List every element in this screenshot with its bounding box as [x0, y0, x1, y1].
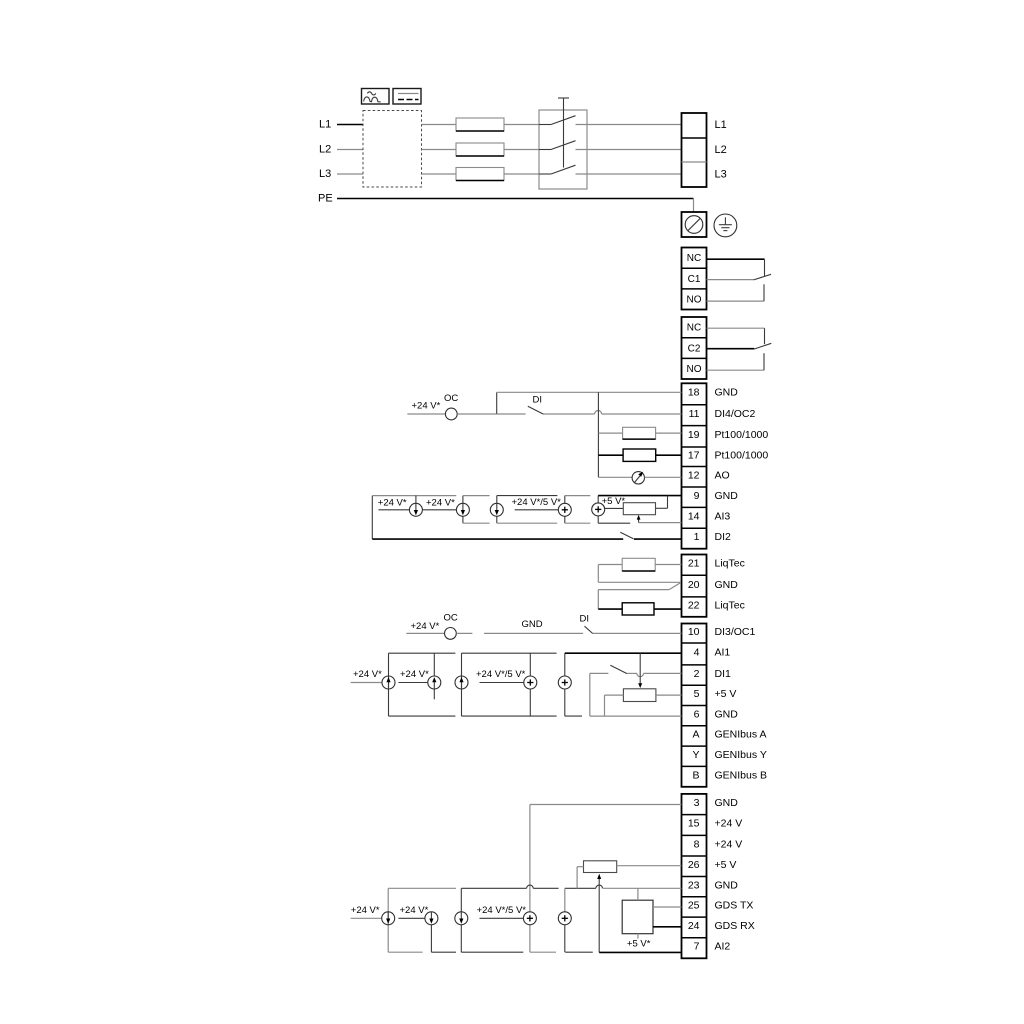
svg-text:GND: GND	[522, 619, 543, 630]
svg-text:1: 1	[694, 531, 700, 543]
svg-text:DI: DI	[533, 395, 543, 406]
svg-text:9: 9	[694, 490, 700, 502]
svg-text:Y: Y	[692, 749, 699, 761]
svg-text:+24 V*: +24 V*	[351, 905, 380, 916]
svg-text:GND: GND	[715, 490, 739, 502]
svg-text:AI3: AI3	[715, 511, 731, 523]
svg-text:NO: NO	[687, 295, 702, 306]
svg-text:+24 V*: +24 V*	[400, 669, 429, 680]
svg-text:14: 14	[688, 511, 700, 523]
svg-text:L1: L1	[319, 119, 331, 131]
svg-text:+5 V: +5 V	[715, 688, 737, 700]
svg-text:19: 19	[688, 429, 700, 441]
svg-text:6: 6	[694, 708, 700, 720]
svg-text:AI2: AI2	[715, 941, 731, 953]
svg-text:A: A	[692, 729, 699, 741]
svg-text:Pt100/1000: Pt100/1000	[715, 449, 769, 461]
svg-text:DI3/OC1: DI3/OC1	[715, 626, 756, 638]
svg-text:+24 V*: +24 V*	[400, 905, 429, 916]
svg-text:+24 V*/5 V*: +24 V*/5 V*	[512, 497, 562, 508]
svg-text:+5 V: +5 V	[715, 859, 737, 871]
svg-text:GENIbus A: GENIbus A	[715, 729, 767, 741]
svg-text:+24 V: +24 V	[715, 818, 743, 830]
svg-text:NO: NO	[687, 364, 702, 375]
svg-text:+24 V*: +24 V*	[426, 497, 455, 508]
svg-text:+24 V*/5 V*: +24 V*/5 V*	[476, 669, 526, 680]
svg-text:DI4/OC2: DI4/OC2	[715, 408, 756, 420]
svg-text:4: 4	[694, 647, 700, 659]
svg-text:C2: C2	[688, 343, 701, 354]
svg-text:+24 V*: +24 V*	[411, 621, 440, 632]
svg-text:11: 11	[689, 408, 700, 420]
svg-text:Pt100/1000: Pt100/1000	[715, 429, 769, 441]
svg-text:AI1: AI1	[715, 647, 731, 659]
svg-text:10: 10	[688, 626, 700, 638]
svg-text:GENIbus B: GENIbus B	[715, 769, 768, 781]
svg-text:24: 24	[688, 920, 700, 932]
svg-text:DI1: DI1	[715, 668, 732, 680]
svg-text:NC: NC	[687, 323, 701, 334]
svg-text:GENIbus Y: GENIbus Y	[715, 749, 767, 761]
svg-text:GND: GND	[715, 879, 739, 891]
svg-text:PE: PE	[318, 193, 333, 205]
svg-text:OC: OC	[444, 612, 458, 623]
svg-text:GDS TX: GDS TX	[715, 900, 754, 912]
svg-text:26: 26	[688, 859, 700, 871]
svg-text:DI2: DI2	[715, 531, 732, 543]
svg-text:LiqTec: LiqTec	[715, 600, 745, 612]
svg-text:18: 18	[688, 387, 700, 399]
svg-text:L2: L2	[715, 144, 727, 156]
svg-text:+24 V*: +24 V*	[378, 497, 407, 508]
svg-text:B: B	[692, 769, 699, 781]
svg-text:23: 23	[688, 879, 700, 891]
svg-text:25: 25	[688, 900, 700, 912]
svg-text:GND: GND	[715, 387, 739, 399]
svg-text:L3: L3	[319, 168, 331, 180]
svg-text:20: 20	[688, 579, 700, 591]
svg-text:21: 21	[688, 558, 700, 570]
svg-text:LiqTec: LiqTec	[715, 558, 745, 570]
svg-text:DI: DI	[580, 614, 590, 625]
svg-text:GND: GND	[715, 797, 739, 809]
svg-text:5: 5	[694, 688, 700, 700]
svg-text:C1: C1	[688, 274, 701, 285]
svg-text:22: 22	[688, 600, 700, 612]
svg-text:12: 12	[688, 469, 700, 481]
svg-text:+24 V: +24 V	[715, 838, 743, 850]
svg-text:NC: NC	[687, 253, 701, 264]
svg-text:AO: AO	[715, 469, 730, 481]
svg-text:2: 2	[694, 668, 700, 680]
svg-text:L3: L3	[715, 169, 727, 181]
svg-text:L2: L2	[319, 144, 331, 156]
svg-text:+24 V*/5 V*: +24 V*/5 V*	[477, 905, 527, 916]
svg-text:+24 V*: +24 V*	[412, 400, 441, 411]
svg-text:+5 V*: +5 V*	[602, 496, 626, 507]
svg-text:L1: L1	[715, 119, 727, 131]
svg-text:GND: GND	[715, 579, 739, 591]
svg-text:+5 V*: +5 V*	[627, 939, 651, 950]
svg-text:GDS RX: GDS RX	[715, 920, 755, 932]
svg-text:GND: GND	[715, 708, 739, 720]
svg-text:3: 3	[694, 797, 700, 809]
svg-text:8: 8	[694, 838, 700, 850]
svg-text:7: 7	[694, 941, 700, 953]
svg-text:15: 15	[688, 818, 700, 830]
svg-text:17: 17	[688, 449, 700, 461]
svg-text:OC: OC	[444, 393, 458, 404]
svg-text:+24 V*: +24 V*	[353, 669, 382, 680]
